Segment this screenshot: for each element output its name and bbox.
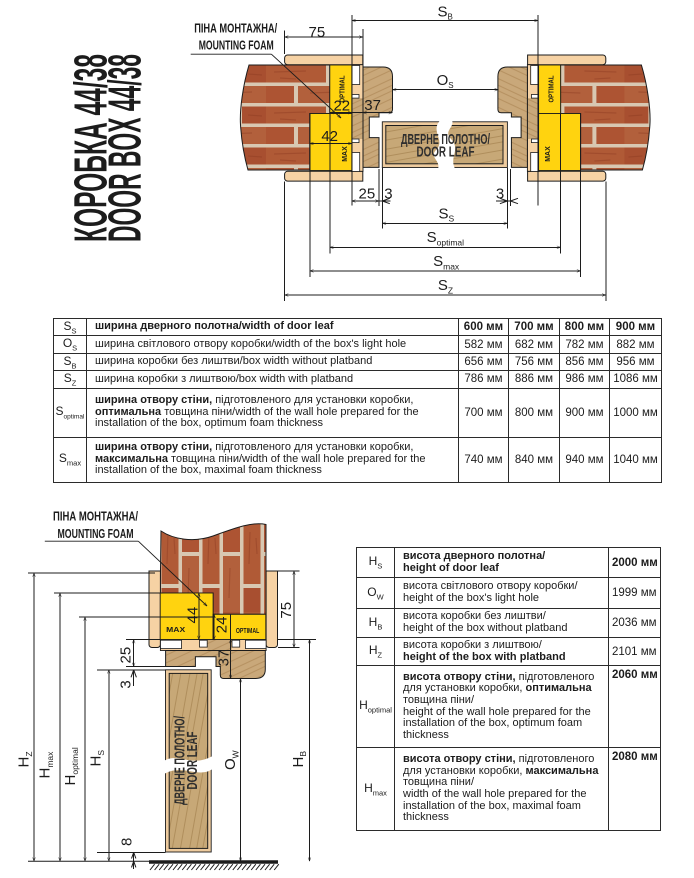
svg-text:HS: HS xyxy=(88,750,106,767)
svg-text:ПІНА МОНТАЖНА/: ПІНА МОНТАЖНА/ xyxy=(53,509,138,524)
svg-text:3: 3 xyxy=(496,185,504,202)
svg-text:MAX: MAX xyxy=(545,146,552,162)
svg-text:Hoptimal: Hoptimal xyxy=(62,747,80,785)
svg-text:DOOR LEAF: DOOR LEAF xyxy=(417,144,475,161)
svg-text:Hmax: Hmax xyxy=(37,751,55,779)
svg-text:SZ: SZ xyxy=(438,277,453,295)
svg-text:MAX: MAX xyxy=(342,146,349,162)
svg-text:75: 75 xyxy=(278,602,295,619)
svg-text:44: 44 xyxy=(185,607,202,624)
svg-text:OPTIMAL: OPTIMAL xyxy=(548,75,555,103)
svg-text:ПІНА МОНТАЖНА/: ПІНА МОНТАЖНА/ xyxy=(194,20,277,35)
svg-text:25: 25 xyxy=(118,647,135,664)
svg-text:HZ: HZ xyxy=(16,751,34,767)
svg-text:OW: OW xyxy=(222,750,240,770)
svg-text:Smax: Smax xyxy=(433,253,460,271)
svg-text:3: 3 xyxy=(118,680,135,688)
svg-text:OPTIMAL: OPTIMAL xyxy=(236,626,260,635)
svg-text:24: 24 xyxy=(214,617,231,634)
svg-text:37: 37 xyxy=(215,650,232,667)
svg-text:Soptimal: Soptimal xyxy=(427,229,465,247)
svg-text:22: 22 xyxy=(333,98,350,115)
svg-text:37: 37 xyxy=(364,97,381,114)
svg-text:MAX: MAX xyxy=(166,625,185,634)
svg-text:OS: OS xyxy=(437,72,454,90)
svg-text:HВ: HВ xyxy=(290,751,308,768)
svg-text:SВ: SВ xyxy=(438,4,453,22)
svg-text:8: 8 xyxy=(119,838,136,846)
svg-text:75: 75 xyxy=(309,24,326,41)
svg-text:MOUNTING FOAM: MOUNTING FOAM xyxy=(58,526,134,541)
svg-text:3: 3 xyxy=(384,185,392,202)
svg-text:42: 42 xyxy=(321,128,338,145)
svg-text:DOOR BOX 44/38: DOOR BOX 44/38 xyxy=(99,54,151,242)
svg-text:DOOR LEAF: DOOR LEAF xyxy=(184,732,201,790)
svg-text:MOUNTING FOAM: MOUNTING FOAM xyxy=(199,38,274,53)
svg-text:25: 25 xyxy=(359,185,376,202)
svg-text:SS: SS xyxy=(439,205,455,223)
